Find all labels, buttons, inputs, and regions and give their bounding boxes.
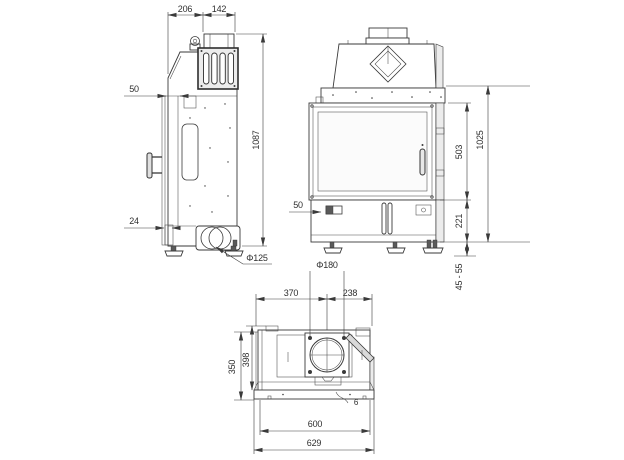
fireplace-technical-drawing: 206 142 50 24 1087 Φ125 (0, 0, 624, 460)
fireplace-technical-drawing-page: 206 142 50 24 1087 Φ125 (0, 0, 624, 460)
dim-side-total-height: 1087 (251, 130, 261, 149)
front-foot-right (423, 248, 443, 253)
front-hood (333, 44, 436, 88)
dim-front-feet-range: 45 - 55 (454, 263, 464, 290)
front-view (309, 28, 445, 253)
dim-front-base-height: 221 (454, 214, 464, 229)
dim-top-depth-front: 350 (227, 360, 237, 375)
side-door-handle (147, 153, 152, 178)
side-flue-stub (204, 34, 234, 48)
side-foot-left (165, 251, 183, 256)
front-glass (318, 112, 427, 191)
dim-side-depth-flue: 142 (212, 4, 227, 14)
side-foot-right (225, 251, 243, 256)
side-view (147, 34, 243, 256)
dim-top-depth-rear: 398 (241, 353, 251, 368)
dim-side-flue-diameter: Φ125 (246, 253, 268, 263)
front-door-handle (420, 149, 425, 175)
dim-top-body-width: 600 (308, 419, 323, 429)
dim-top-overall-width: 629 (307, 438, 322, 448)
dim-side-front-offset: 50 (129, 84, 139, 94)
dim-side-depth-front: 206 (178, 4, 193, 14)
dim-front-body-height: 1025 (475, 130, 485, 149)
dim-front-glass-height: 503 (454, 145, 464, 160)
dim-top-flue-to-right: 238 (343, 288, 358, 298)
dim-side-bottom-offset: 24 (129, 216, 139, 226)
dim-top-left-to-flue: 370 (284, 288, 299, 298)
front-foot-center (387, 248, 405, 253)
front-foot-left (324, 248, 342, 253)
front-screw-band (321, 88, 445, 103)
dim-front-latch-offset: 50 (293, 200, 303, 210)
dim-top-flue-diameter: Φ180 (316, 260, 338, 270)
top-view (254, 326, 374, 403)
